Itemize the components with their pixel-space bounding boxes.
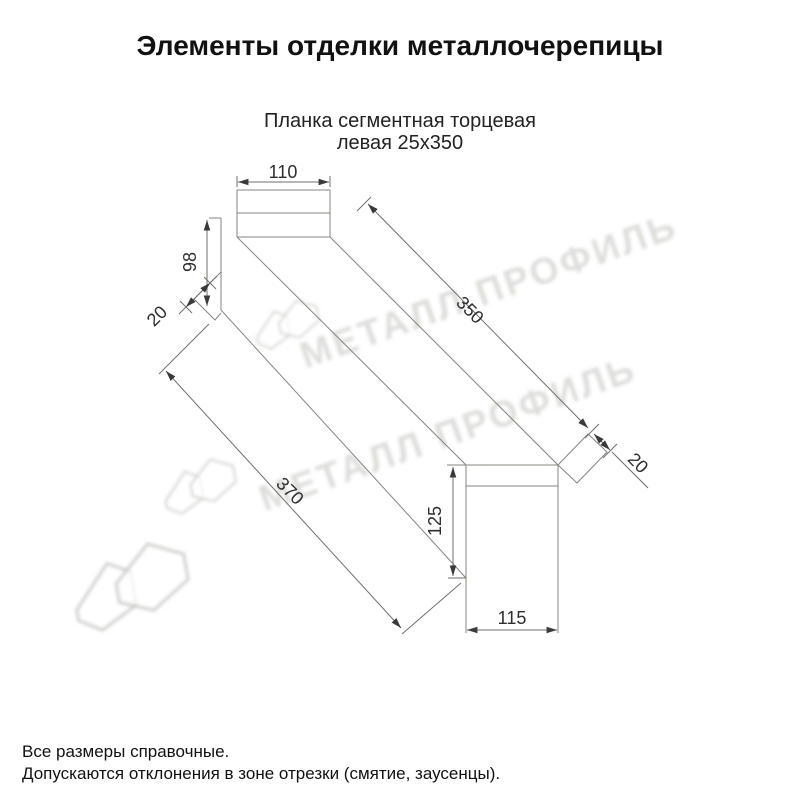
technical-drawing-page: МЕТАЛЛ ПРОФИЛЬ МЕТАЛЛ ПРОФИЛЬ Элементы о… <box>0 0 800 800</box>
dim-flange-width: 110 <box>237 162 330 187</box>
top-flange-outline <box>237 190 330 237</box>
watermark-lower-logo <box>68 538 194 634</box>
dim-end-width: 115 <box>467 608 557 630</box>
product-subtitle-line2: левая 25х350 <box>337 132 463 154</box>
right-hem-fold <box>558 434 607 483</box>
dim-98-label: 98 <box>180 252 200 272</box>
left-end-web <box>209 218 221 310</box>
page-title: Элементы отделки металлочерепицы <box>137 30 664 61</box>
watermark-middle: МЕТАЛЛ ПРОФИЛЬ <box>160 348 642 519</box>
metall-profil-logo-icon <box>110 538 192 616</box>
dim-left-hem: 20 <box>143 276 217 330</box>
dim-110-label: 110 <box>269 162 298 182</box>
footer-note-line1: Все размеры справочные. <box>22 742 229 761</box>
metall-profil-logo-icon <box>187 456 239 505</box>
footer-note-line2: Допускаются отклонения в зоне отрезки (с… <box>22 764 500 783</box>
dim-end-height: 125 <box>425 467 466 578</box>
dim-20-right-label: 20 <box>624 449 652 477</box>
dim-right-hem: 20 <box>594 434 652 488</box>
dim-125-label: 125 <box>425 506 445 536</box>
dim-115-label: 115 <box>498 608 527 628</box>
dim-20-left-label: 20 <box>143 302 171 330</box>
dim-web-height: 98 <box>180 220 207 306</box>
product-subtitle-line1: Планка сегментная торцевая <box>264 110 536 132</box>
drawing-canvas: МЕТАЛЛ ПРОФИЛЬ МЕТАЛЛ ПРОФИЛЬ Элементы о… <box>0 0 800 800</box>
